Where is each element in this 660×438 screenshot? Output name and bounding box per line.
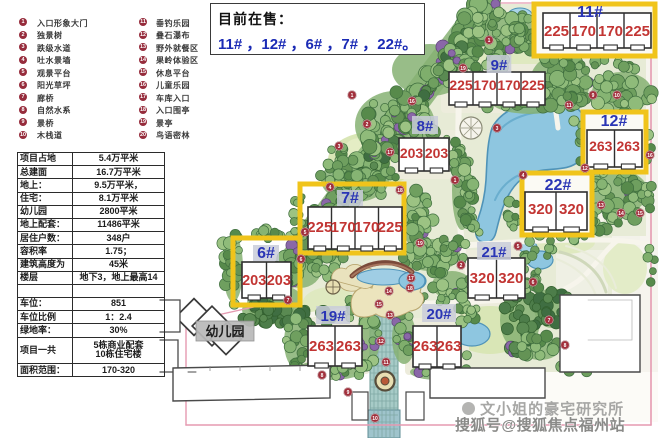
svg-text:11: 11: [383, 360, 389, 366]
svg-text:6#: 6#: [257, 245, 275, 262]
svg-text:4: 4: [329, 185, 332, 191]
svg-text:203: 203: [242, 273, 266, 289]
svg-text:6: 6: [300, 257, 303, 263]
svg-text:19: 19: [460, 66, 466, 72]
svg-text:3: 3: [338, 144, 341, 150]
svg-text:5: 5: [304, 230, 307, 236]
svg-text:7#: 7#: [341, 190, 359, 207]
svg-text:18: 18: [397, 188, 403, 194]
svg-text:15: 15: [376, 302, 382, 308]
svg-text:4: 4: [522, 173, 525, 179]
svg-text:263: 263: [412, 338, 437, 355]
svg-text:225: 225: [307, 219, 332, 236]
svg-text:263: 263: [436, 338, 461, 355]
svg-text:16: 16: [647, 153, 653, 159]
svg-text:13: 13: [598, 203, 604, 209]
svg-text:14: 14: [618, 211, 624, 217]
svg-text:11: 11: [566, 103, 572, 109]
svg-text:12#: 12#: [601, 113, 628, 130]
svg-text:21#: 21#: [481, 244, 507, 261]
svg-text:2: 2: [366, 122, 369, 128]
svg-text:170: 170: [497, 77, 521, 93]
svg-text:170: 170: [354, 219, 379, 236]
svg-text:5: 5: [517, 244, 520, 250]
svg-text:225: 225: [449, 77, 473, 93]
svg-text:19#: 19#: [320, 308, 346, 325]
svg-text:20#: 20#: [426, 306, 452, 323]
svg-text:8#: 8#: [417, 118, 434, 135]
svg-text:1: 1: [488, 38, 491, 44]
svg-text:170: 170: [331, 219, 356, 236]
svg-text:12: 12: [378, 339, 384, 345]
svg-text:263: 263: [309, 338, 334, 355]
svg-text:203: 203: [400, 145, 424, 161]
svg-text:12: 12: [582, 166, 588, 172]
svg-text:225: 225: [544, 23, 569, 40]
svg-text:幼儿园: 幼儿园: [205, 324, 244, 339]
svg-text:10: 10: [372, 416, 378, 422]
svg-text:14: 14: [386, 289, 392, 295]
svg-text:17: 17: [408, 276, 414, 282]
svg-text:225: 225: [521, 77, 545, 93]
svg-text:1: 1: [454, 178, 457, 184]
svg-text:203: 203: [425, 145, 449, 161]
svg-text:15: 15: [637, 211, 643, 217]
svg-text:203: 203: [267, 273, 291, 289]
svg-text:170: 170: [473, 77, 497, 93]
svg-text:3: 3: [496, 126, 499, 132]
svg-text:13: 13: [387, 313, 393, 319]
svg-text:17: 17: [387, 150, 393, 156]
svg-text:170: 170: [571, 23, 596, 40]
svg-text:18: 18: [407, 286, 413, 292]
svg-text:8: 8: [564, 343, 567, 349]
svg-text:11#: 11#: [577, 4, 603, 21]
svg-text:9: 9: [592, 93, 595, 99]
svg-text:9#: 9#: [491, 57, 508, 74]
svg-text:225: 225: [378, 219, 403, 236]
svg-text:10: 10: [614, 93, 620, 99]
svg-text:2: 2: [460, 263, 463, 269]
svg-text:16: 16: [409, 99, 415, 105]
svg-text:9: 9: [347, 390, 350, 396]
svg-text:22#: 22#: [545, 177, 572, 194]
svg-text:19: 19: [417, 241, 423, 247]
svg-text:320: 320: [498, 270, 523, 287]
svg-text:263: 263: [617, 138, 641, 154]
svg-text:320: 320: [470, 270, 495, 287]
svg-text:7: 7: [287, 298, 290, 304]
svg-text:170: 170: [598, 23, 623, 40]
svg-text:263: 263: [336, 338, 361, 355]
svg-text:320: 320: [559, 201, 584, 218]
svg-text:8: 8: [321, 373, 324, 379]
svg-text:6: 6: [532, 280, 535, 286]
svg-text:263: 263: [589, 138, 613, 154]
svg-text:7: 7: [548, 318, 551, 324]
svg-text:320: 320: [528, 201, 553, 218]
svg-text:1: 1: [351, 93, 354, 99]
svg-text:225: 225: [625, 23, 650, 40]
